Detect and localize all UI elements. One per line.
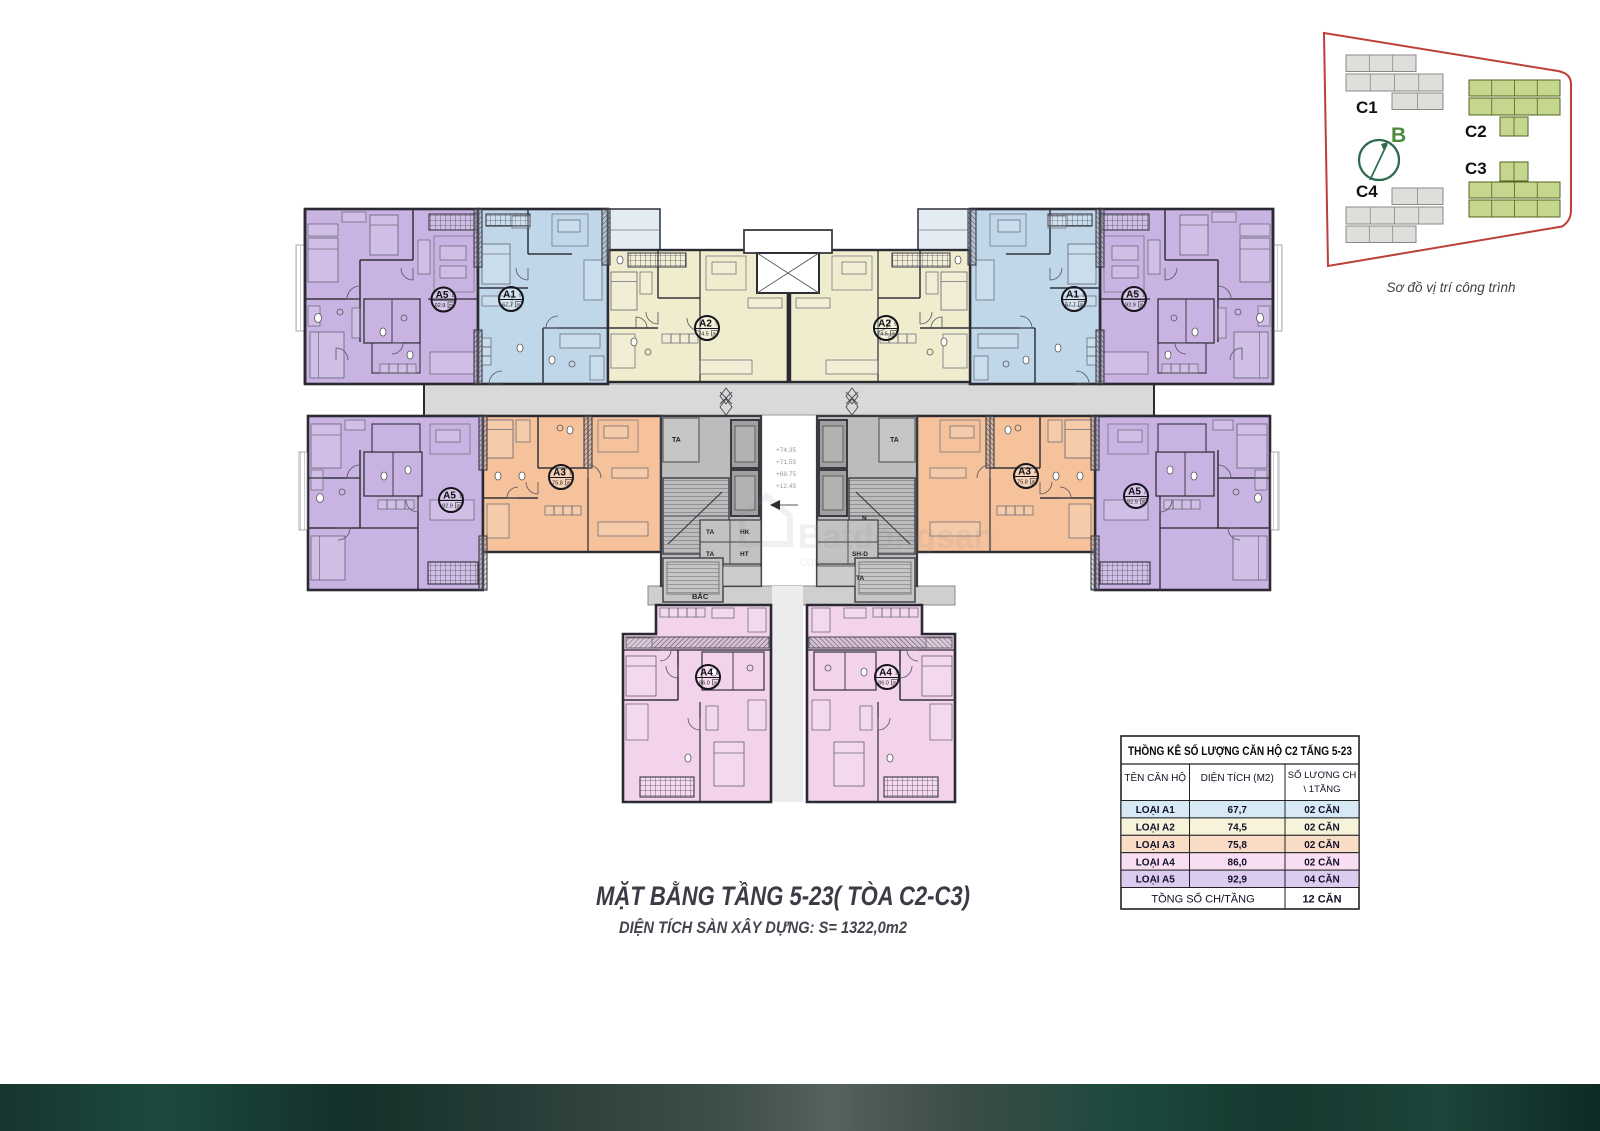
svg-text:67.7: 67.7 [502,303,513,309]
svg-text:75.8: 75.8 [552,481,563,487]
svg-text:B: B [1391,124,1406,147]
svg-text:02 CĂN: 02 CĂN [1304,803,1340,816]
svg-text:m: m [893,680,897,685]
svg-text:12 CĂN: 12 CĂN [1302,893,1341,906]
svg-text:A4: A4 [879,668,892,679]
svg-text:m: m [1142,499,1146,504]
svg-text:A5: A5 [1126,290,1139,301]
svg-text:C2: C2 [1465,122,1487,141]
svg-text:m: m [1032,479,1036,484]
svg-text:SỐ LƯỢNG CH: SỐ LƯỢNG CH [1288,769,1357,781]
svg-text:TA: TA [672,437,681,444]
svg-text:A5: A5 [443,491,456,502]
svg-text:m: m [567,480,571,485]
svg-text:LOẠI A1: LOẠI A1 [1136,805,1176,816]
svg-text:92,9: 92,9 [1228,875,1248,886]
svg-text:HT: HT [740,551,749,558]
svg-text:LOẠI A2: LOẠI A2 [1136,823,1176,834]
svg-text:BẮC: BẮC [692,592,709,601]
svg-text:m: m [714,680,718,685]
svg-text:86,0: 86,0 [1228,857,1248,868]
svg-text:A1: A1 [1066,290,1079,301]
svg-text:86.0: 86.0 [878,681,889,687]
svg-text:m: m [449,303,453,308]
svg-text:Sơ đồ vị trí công trình: Sơ đồ vị trí công trình [1387,280,1516,295]
svg-text:THỒNG KÊ SỐ LƯỢNG CĂN HỘ C2 TẤ: THỒNG KÊ SỐ LƯỢNG CĂN HỘ C2 TẤNG 5-23 [1128,744,1352,758]
svg-text:+74.35: +74.35 [776,447,796,454]
svg-text:m: m [1080,302,1084,307]
svg-text:C1: C1 [1356,98,1378,117]
svg-text:A1: A1 [503,290,516,301]
svg-text:75.8: 75.8 [1017,480,1028,486]
svg-text:A3: A3 [1018,467,1031,478]
svg-text:74.5: 74.5 [698,332,709,338]
svg-text:12: 12 [459,494,465,499]
svg-text:C3: C3 [1465,159,1487,178]
svg-text:75,8: 75,8 [1228,840,1248,851]
svg-text:A4: A4 [700,668,713,679]
svg-text:m: m [892,331,896,336]
svg-text:TA: TA [706,551,714,558]
svg-text:TA: TA [706,529,714,536]
svg-text:A2: A2 [878,319,891,330]
svg-text:TA: TA [890,437,899,444]
svg-text:92.9: 92.9 [435,303,446,309]
svg-text:com.vn: com.vn [800,554,842,569]
svg-text:LOẠI A4: LOẠI A4 [1136,857,1176,868]
svg-text:11: 11 [452,293,457,298]
svg-text:m: m [517,302,521,307]
svg-text:C4: C4 [1356,182,1378,201]
svg-text:A3: A3 [553,468,566,479]
svg-text:+12.45: +12.45 [776,483,796,490]
svg-text:TỒNG SỐ CH/TẦNG: TỒNG SỐ CH/TẦNG [1151,892,1254,906]
svg-text:LOẠI A5: LOẠI A5 [1136,875,1176,886]
svg-text:DIỆN TÍCH (M2): DIỆN TÍCH (M2) [1201,771,1274,784]
svg-text:m: m [1140,302,1144,307]
svg-text:92.9: 92.9 [442,504,453,510]
svg-text:A5: A5 [1128,487,1141,498]
svg-text:A5: A5 [436,290,449,301]
svg-text:86.0: 86.0 [699,681,710,687]
svg-text:\ 1TẦNG: \ 1TẦNG [1304,784,1341,795]
svg-text:10: 10 [569,471,575,476]
svg-text:92.9: 92.9 [1125,303,1136,309]
svg-text:67.7: 67.7 [1065,303,1076,309]
svg-text:74,5: 74,5 [1228,823,1248,834]
svg-text:m: m [457,503,461,508]
svg-text:TÊN CĂN HỘ: TÊN CĂN HỘ [1124,771,1186,784]
svg-text:Batdongsan: Batdongsan [798,518,994,556]
svg-text:LOẠI A3: LOẠI A3 [1136,840,1176,851]
svg-text:67,7: 67,7 [1228,805,1248,816]
svg-text:02 CĂN: 02 CĂN [1304,855,1340,868]
svg-text:DIỆN TÍCH SÀN XÂY DỰNG: S= 132: DIỆN TÍCH SÀN XÂY DỰNG: S= 1322,0m2 [619,918,907,937]
svg-text:92.9: 92.9 [1127,500,1138,506]
svg-text:74.5: 74.5 [877,332,888,338]
svg-text:m: m [713,331,717,336]
svg-text:04 CĂN: 04 CĂN [1304,873,1340,886]
svg-text:TA: TA [856,575,864,582]
svg-text:+68.75: +68.75 [776,471,796,478]
svg-text:+71.55: +71.55 [776,459,796,466]
svg-text:MẶT BẰNG TẦNG 5-23( TÒA C2-C3): MẶT BẰNG TẦNG 5-23( TÒA C2-C3) [596,880,970,911]
svg-text:A2: A2 [699,319,712,330]
svg-text:02 CĂN: 02 CĂN [1304,838,1340,851]
svg-text:02 CĂN: 02 CĂN [1304,821,1340,834]
